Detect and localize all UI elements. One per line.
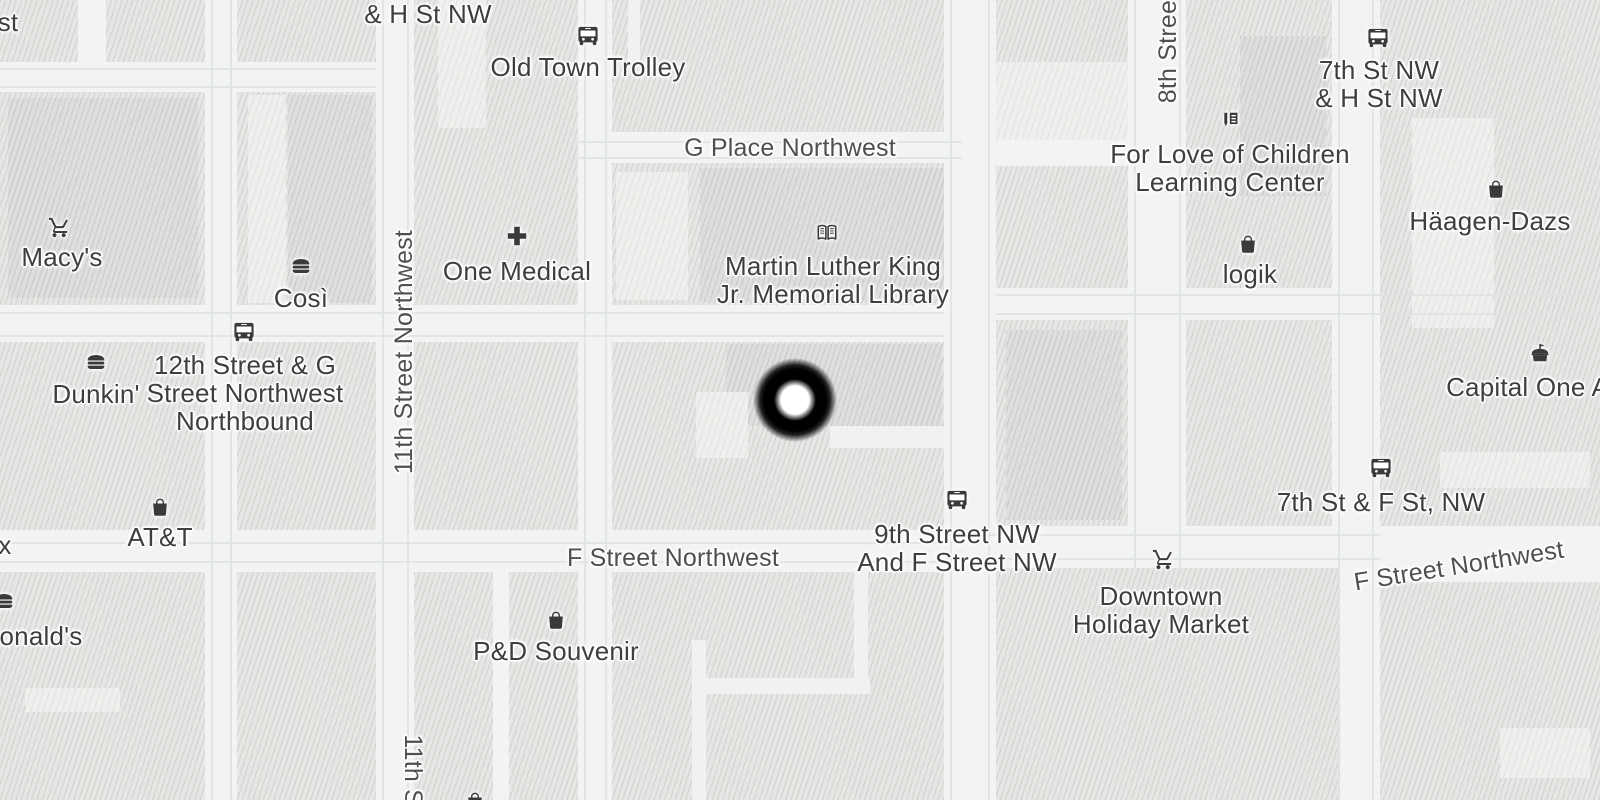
burger-icon[interactable]: [290, 256, 313, 277]
street-label-f-street-northwest-west: F Street Northwest: [567, 544, 779, 572]
building: [996, 62, 1128, 140]
book-icon[interactable]: [815, 222, 840, 244]
street-casing: [0, 312, 944, 314]
poi-label-line: One Medical: [443, 257, 591, 285]
poi-label-att[interactable]: AT&T: [127, 523, 192, 551]
poi-label-partial-st[interactable]: st: [0, 8, 18, 36]
street-label-11th-street-northwest: 11th Street Northwest: [390, 230, 418, 474]
street-casing: [1134, 0, 1136, 568]
building: [1500, 728, 1590, 778]
map-canvas[interactable]: G Place NorthwestF Street NorthwestF Str…: [0, 0, 1600, 800]
street-casing: [988, 0, 990, 800]
burger-icon[interactable]: [85, 352, 108, 373]
street-label-g-place-northwest: G Place Northwest: [684, 134, 896, 162]
city-block: [414, 342, 578, 530]
bag-icon[interactable]: [1238, 233, 1259, 256]
city-block: [509, 572, 578, 800]
poi-label-line: 7th St & F St, NW: [1277, 488, 1486, 516]
street-casing: [605, 0, 607, 800]
poi-label-line: Dunkin': [52, 380, 139, 408]
city-block: [106, 0, 205, 62]
street-casing: [0, 86, 376, 88]
poi-label-line: Northbound: [147, 407, 344, 435]
poi-label-line: Macy's: [21, 243, 102, 271]
poi-label-line: Häagen-Dazs: [1409, 207, 1570, 235]
street-casing: [584, 0, 586, 800]
poi-label-bus-stop-7th-h[interactable]: 7th St NW& H St NW: [1315, 56, 1442, 112]
poi-label-macys[interactable]: Macy's: [21, 243, 102, 271]
poi-label-bus-stop-12th-g[interactable]: 12th Street & GStreet NorthwestNorthboun…: [147, 351, 344, 435]
poi-label-line: logik: [1223, 260, 1277, 288]
poi-label-h-st-nw-partial[interactable]: & H St NW: [364, 0, 491, 28]
poi-label-line: Downtown: [1073, 582, 1249, 610]
location-marker: [752, 357, 838, 443]
city-block: [237, 0, 376, 62]
burger-icon[interactable]: [0, 591, 16, 612]
street-casing: [996, 294, 1600, 296]
poi-label-line: Capital One Arena: [1446, 373, 1600, 401]
city-block: [996, 166, 1128, 288]
bus-icon[interactable]: [1370, 456, 1393, 481]
poi-label-partial-x[interactable]: x: [0, 531, 12, 559]
poi-label-line: 7th St NW: [1315, 56, 1442, 84]
alley: [854, 572, 868, 682]
street-casing: [996, 313, 1600, 315]
building: [248, 95, 286, 303]
cart-icon[interactable]: [48, 217, 71, 240]
street-casing: [950, 0, 952, 800]
alley: [692, 640, 706, 800]
poi-label-haagen-dazs[interactable]: Häagen-Dazs: [1409, 207, 1570, 235]
poi-label-line: Old Town Trolley: [491, 53, 686, 81]
bag-icon[interactable]: [1486, 178, 1507, 201]
poi-label-line: Martin Luther King: [717, 252, 949, 280]
poi-label-old-town-trolley[interactable]: Old Town Trolley: [491, 53, 686, 81]
poi-label-cosi[interactable]: Così: [274, 284, 328, 312]
poi-label-line: Holiday Market: [1073, 610, 1249, 638]
poi-label-line: And F Street NW: [857, 548, 1057, 576]
street-casing: [1338, 0, 1340, 800]
poi-label-line: Così: [274, 284, 328, 312]
street-casing: [0, 68, 376, 70]
bus-icon[interactable]: [1367, 26, 1390, 51]
poi-label-downtown-holiday-market[interactable]: DowntownHoliday Market: [1073, 582, 1249, 638]
poi-label-bus-stop-9th-f[interactable]: 9th Street NWAnd F Street NW: [857, 520, 1057, 576]
building: [1006, 330, 1122, 520]
poi-label-line: Street Northwest: [147, 379, 344, 407]
alley: [692, 678, 870, 694]
poi-label-mcdonalds-partial[interactable]: McDonald's: [0, 622, 83, 650]
street-label-11th-street-partial-bottom: 11th Str: [399, 734, 427, 800]
street-casing: [382, 0, 384, 800]
poi-label-line: & H St NW: [1315, 84, 1442, 112]
poi-label-line: P&D Souvenir: [473, 637, 639, 665]
poi-label-logik[interactable]: logik: [1223, 260, 1277, 288]
poi-label-pd-souvenir[interactable]: P&D Souvenir: [473, 637, 639, 665]
street-casing: [1372, 0, 1374, 800]
poi-label-bus-stop-7th-f[interactable]: 7th St & F St, NW: [1277, 488, 1486, 516]
street-casing: [0, 335, 944, 337]
poi-label-one-medical[interactable]: One Medical: [443, 257, 591, 285]
poi-label-capital-one-arena[interactable]: Capital One Arena: [1446, 373, 1600, 401]
street-label-8th-street: 8th Street: [1154, 0, 1182, 103]
poi-label-line: 9th Street NW: [857, 520, 1057, 548]
poi-label-line: st: [0, 8, 18, 36]
city-block: [237, 572, 376, 800]
bag-icon[interactable]: [150, 496, 171, 519]
arena-icon[interactable]: [1529, 343, 1552, 366]
poi-label-line: 12th Street & G: [147, 351, 344, 379]
poi-label-for-love-of-children[interactable]: For Love of ChildrenLearning Center: [1110, 140, 1350, 196]
cart-icon[interactable]: [1152, 549, 1175, 572]
bag-icon[interactable]: [465, 790, 486, 800]
bus-icon[interactable]: [233, 320, 256, 345]
street-casing: [0, 561, 944, 563]
bus-icon[interactable]: [577, 24, 600, 49]
cross-icon[interactable]: [505, 224, 529, 248]
poi-label-mlk-memorial-library[interactable]: Martin Luther KingJr. Memorial Library: [717, 252, 949, 308]
building: [616, 172, 688, 300]
education-icon[interactable]: [1220, 110, 1241, 133]
building: [1440, 452, 1590, 488]
poi-label-line: x: [0, 531, 12, 559]
poi-label-line: McDonald's: [0, 622, 83, 650]
building: [696, 392, 748, 458]
poi-label-line: Learning Center: [1110, 168, 1350, 196]
bag-icon[interactable]: [546, 609, 567, 632]
alley: [830, 426, 944, 448]
bus-icon[interactable]: [946, 488, 969, 513]
poi-label-line: Jr. Memorial Library: [717, 280, 949, 308]
city-block: [0, 572, 205, 800]
building: [25, 688, 120, 712]
poi-label-line: AT&T: [127, 523, 192, 551]
poi-label-line: For Love of Children: [1110, 140, 1350, 168]
poi-label-dunkin[interactable]: Dunkin': [52, 380, 139, 408]
poi-label-line: & H St NW: [364, 0, 491, 28]
